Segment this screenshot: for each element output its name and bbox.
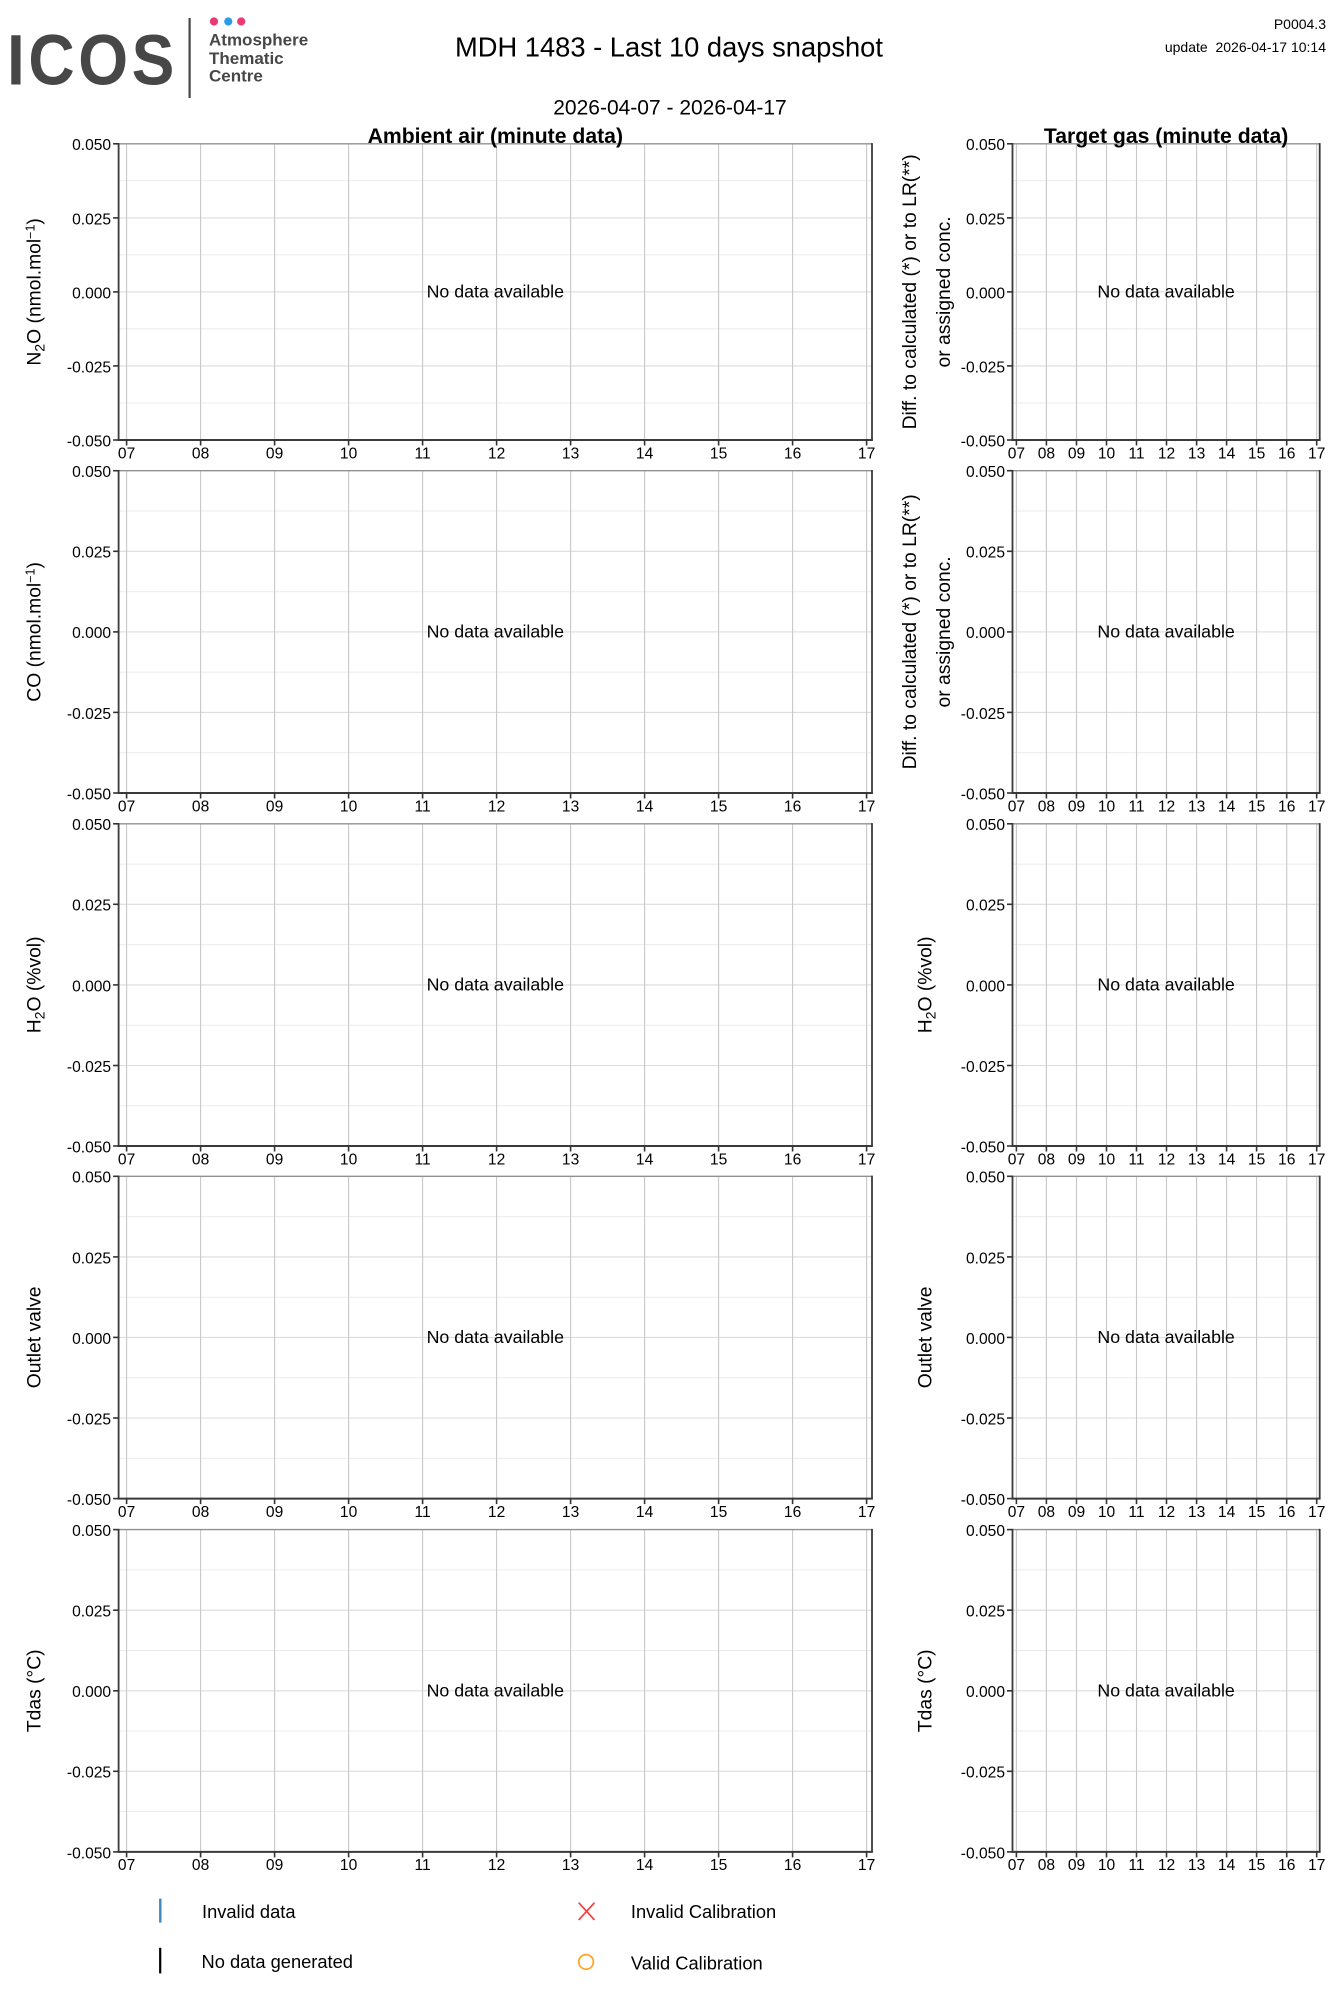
svg-text:07: 07 [118, 445, 135, 462]
svg-text:11: 11 [415, 1504, 431, 1521]
svg-text:13: 13 [562, 1504, 579, 1521]
svg-text:0.000: 0.000 [72, 1331, 111, 1348]
svg-text:0.050: 0.050 [72, 817, 111, 834]
svg-text:17: 17 [858, 798, 875, 815]
svg-text:Diff. to calculated (*) or to: Diff. to calculated (*) or to LR(**) [900, 494, 921, 769]
svg-text:12: 12 [1158, 1504, 1175, 1521]
svg-text:0.050: 0.050 [966, 1523, 1005, 1540]
svg-text:15: 15 [1248, 1504, 1266, 1521]
svg-text:17: 17 [1308, 1504, 1325, 1521]
svg-text:No data available: No data available [427, 282, 565, 302]
svg-text:0.000: 0.000 [966, 1684, 1005, 1701]
svg-text:14: 14 [1218, 1857, 1236, 1874]
svg-text:09: 09 [266, 798, 283, 815]
svg-text:12: 12 [488, 1151, 505, 1168]
svg-text:16: 16 [1278, 1151, 1295, 1168]
svg-text:13: 13 [562, 1151, 579, 1168]
svg-text:16: 16 [784, 1151, 801, 1168]
svg-text:09: 09 [1068, 445, 1085, 462]
svg-text:13: 13 [562, 1857, 579, 1874]
svg-text:-0.025: -0.025 [961, 706, 1006, 723]
svg-text:14: 14 [636, 1151, 654, 1168]
svg-text:10: 10 [340, 1504, 358, 1521]
svg-text:15: 15 [710, 1151, 728, 1168]
svg-text:16: 16 [1278, 445, 1295, 462]
svg-text:07: 07 [1008, 1857, 1025, 1874]
svg-text:Thematic: Thematic [209, 49, 284, 68]
svg-text:Ambient air (minute data): Ambient air (minute data) [368, 125, 623, 148]
svg-text:16: 16 [1278, 1504, 1295, 1521]
svg-text:0.025: 0.025 [966, 898, 1005, 915]
svg-text:11: 11 [415, 445, 431, 462]
svg-text:09: 09 [1068, 798, 1085, 815]
svg-text:0.000: 0.000 [72, 978, 111, 995]
svg-text:17: 17 [858, 445, 875, 462]
svg-text:07: 07 [1008, 798, 1025, 815]
svg-text:08: 08 [192, 1504, 209, 1521]
svg-text:0.025: 0.025 [966, 1250, 1005, 1267]
svg-text:10: 10 [340, 445, 358, 462]
svg-text:CO (nmol.mol−1): CO (nmol.mol−1) [23, 562, 45, 702]
svg-text:Outlet valve: Outlet valve [916, 1286, 937, 1388]
svg-text:13: 13 [562, 798, 579, 815]
svg-text:11: 11 [415, 1857, 431, 1874]
svg-text:or assigned conc.: or assigned conc. [934, 556, 955, 707]
svg-text:09: 09 [266, 1151, 283, 1168]
svg-text:09: 09 [266, 1857, 283, 1874]
svg-text:10: 10 [340, 1151, 358, 1168]
svg-text:-0.050: -0.050 [961, 1139, 1006, 1156]
svg-text:08: 08 [1038, 1504, 1055, 1521]
svg-text:15: 15 [710, 798, 728, 815]
svg-text:10: 10 [340, 798, 358, 815]
svg-text:P0004.3: P0004.3 [1274, 16, 1326, 32]
svg-text:No data available: No data available [1097, 282, 1235, 302]
svg-text:13: 13 [562, 445, 579, 462]
svg-text:-0.050: -0.050 [67, 1845, 112, 1862]
svg-text:0.000: 0.000 [72, 285, 111, 302]
svg-text:15: 15 [1248, 1857, 1266, 1874]
svg-text:15: 15 [1248, 1151, 1266, 1168]
svg-text:08: 08 [1038, 1857, 1055, 1874]
svg-text:10: 10 [1098, 445, 1116, 462]
svg-text:16: 16 [1278, 798, 1295, 815]
svg-text:No data available: No data available [1097, 1327, 1235, 1347]
svg-text:-0.025: -0.025 [961, 1765, 1006, 1782]
svg-text:-0.025: -0.025 [961, 1411, 1006, 1428]
svg-text:14: 14 [636, 1504, 654, 1521]
svg-text:15: 15 [710, 445, 728, 462]
svg-text:No data available: No data available [427, 975, 565, 995]
svg-text:12: 12 [1158, 1151, 1175, 1168]
svg-text:0.050: 0.050 [72, 464, 111, 481]
svg-text:15: 15 [710, 1504, 728, 1521]
svg-text:0.025: 0.025 [72, 1250, 111, 1267]
svg-text:0.025: 0.025 [72, 898, 111, 915]
svg-text:12: 12 [488, 1504, 505, 1521]
svg-text:09: 09 [1068, 1504, 1085, 1521]
svg-text:0.050: 0.050 [966, 137, 1005, 154]
svg-text:-0.050: -0.050 [961, 1492, 1006, 1509]
svg-text:08: 08 [1038, 445, 1055, 462]
svg-text:13: 13 [1188, 445, 1205, 462]
svg-text:0.000: 0.000 [966, 285, 1005, 302]
svg-text:07: 07 [118, 1857, 135, 1874]
svg-text:16: 16 [784, 1857, 801, 1874]
svg-text:ICOS: ICOS [7, 21, 178, 101]
svg-text:17: 17 [858, 1504, 875, 1521]
svg-text:No data available: No data available [427, 1681, 565, 1701]
svg-text:12: 12 [488, 445, 505, 462]
svg-text:0.050: 0.050 [966, 817, 1005, 834]
svg-text:0.050: 0.050 [966, 1170, 1005, 1187]
svg-text:-0.050: -0.050 [961, 786, 1006, 803]
svg-text:09: 09 [266, 1504, 283, 1521]
svg-text:17: 17 [1308, 1151, 1325, 1168]
svg-text:14: 14 [636, 1857, 654, 1874]
svg-text:08: 08 [192, 445, 209, 462]
svg-text:13: 13 [1188, 1504, 1205, 1521]
svg-text:0.025: 0.025 [72, 545, 111, 562]
svg-text:10: 10 [340, 1857, 358, 1874]
svg-text:07: 07 [1008, 1504, 1025, 1521]
svg-text:15: 15 [1248, 445, 1266, 462]
svg-text:-0.050: -0.050 [67, 1492, 112, 1509]
svg-text:0.050: 0.050 [72, 137, 111, 154]
svg-text:MDH 1483 - Last 10 days snapsh: MDH 1483 - Last 10 days snapshot [455, 32, 883, 63]
svg-text:12: 12 [1158, 798, 1175, 815]
svg-text:15: 15 [710, 1857, 728, 1874]
svg-text:17: 17 [858, 1857, 875, 1874]
svg-text:0.025: 0.025 [966, 545, 1005, 562]
svg-text:0.000: 0.000 [966, 1331, 1005, 1348]
svg-text:16: 16 [784, 1504, 801, 1521]
svg-text:-0.025: -0.025 [961, 1059, 1006, 1076]
svg-text:10: 10 [1098, 1857, 1116, 1874]
svg-text:No data available: No data available [1097, 1681, 1235, 1701]
svg-text:14: 14 [1218, 1504, 1236, 1521]
svg-text:08: 08 [192, 1857, 209, 1874]
svg-text:17: 17 [858, 1151, 875, 1168]
svg-text:08: 08 [1038, 798, 1055, 815]
svg-text:No data available: No data available [1097, 975, 1235, 995]
svg-text:11: 11 [1128, 798, 1144, 815]
svg-text:17: 17 [1308, 798, 1325, 815]
svg-text:16: 16 [784, 445, 801, 462]
svg-text:11: 11 [1128, 1504, 1144, 1521]
svg-text:07: 07 [118, 798, 135, 815]
svg-text:09: 09 [1068, 1857, 1085, 1874]
svg-text:-0.050: -0.050 [961, 433, 1006, 450]
svg-text:08: 08 [192, 798, 209, 815]
svg-text:-0.050: -0.050 [67, 433, 112, 450]
svg-text:-0.025: -0.025 [961, 359, 1006, 376]
svg-text:11: 11 [1128, 445, 1144, 462]
svg-text:0.050: 0.050 [72, 1523, 111, 1540]
svg-text:or assigned conc.: or assigned conc. [934, 216, 955, 367]
svg-text:No data generated: No data generated [202, 1951, 353, 1972]
svg-text:0.000: 0.000 [966, 978, 1005, 995]
svg-text:Target gas (minute data): Target gas (minute data) [1044, 125, 1288, 148]
svg-text:0.000: 0.000 [966, 625, 1005, 642]
svg-text:-0.050: -0.050 [961, 1845, 1006, 1862]
svg-text:Valid Calibration: Valid Calibration [631, 1952, 763, 1973]
svg-text:0.025: 0.025 [72, 211, 111, 228]
svg-text:11: 11 [415, 1151, 431, 1168]
svg-text:0.025: 0.025 [966, 211, 1005, 228]
svg-text:14: 14 [1218, 798, 1236, 815]
svg-text:14: 14 [636, 445, 654, 462]
svg-text:10: 10 [1098, 798, 1116, 815]
svg-text:-0.025: -0.025 [67, 359, 112, 376]
svg-text:11: 11 [415, 798, 431, 815]
svg-text:0.025: 0.025 [966, 1604, 1005, 1621]
svg-text:Tdas (°C): Tdas (°C) [916, 1649, 937, 1732]
svg-text:07: 07 [1008, 1151, 1025, 1168]
svg-text:-0.025: -0.025 [67, 1059, 112, 1076]
svg-text:Outlet valve: Outlet valve [25, 1286, 46, 1388]
svg-text:No data available: No data available [1097, 622, 1235, 642]
svg-text:14: 14 [1218, 445, 1236, 462]
svg-text:Centre: Centre [209, 67, 263, 86]
svg-text:09: 09 [266, 445, 283, 462]
svg-text:0.025: 0.025 [72, 1604, 111, 1621]
svg-text:0.050: 0.050 [72, 1170, 111, 1187]
svg-text:Tdas (°C): Tdas (°C) [25, 1649, 46, 1732]
svg-text:16: 16 [784, 798, 801, 815]
svg-text:-0.025: -0.025 [67, 1765, 112, 1782]
svg-text:07: 07 [118, 1151, 135, 1168]
svg-text:17: 17 [1308, 1857, 1325, 1874]
svg-text:10: 10 [1098, 1151, 1116, 1168]
svg-text:08: 08 [1038, 1151, 1055, 1168]
svg-text:17: 17 [1308, 445, 1325, 462]
svg-text:0.000: 0.000 [72, 625, 111, 642]
svg-text:Atmosphere: Atmosphere [209, 31, 308, 50]
svg-text:13: 13 [1188, 798, 1205, 815]
svg-text:13: 13 [1188, 1857, 1205, 1874]
svg-text:-0.050: -0.050 [67, 1139, 112, 1156]
svg-text:-0.025: -0.025 [67, 706, 112, 723]
svg-text:07: 07 [1008, 445, 1025, 462]
svg-text:No data available: No data available [427, 622, 565, 642]
svg-text:-0.050: -0.050 [67, 786, 112, 803]
svg-text:09: 09 [1068, 1151, 1085, 1168]
svg-text:0.000: 0.000 [72, 1684, 111, 1701]
svg-text:No data available: No data available [427, 1327, 565, 1347]
svg-text:12: 12 [1158, 445, 1175, 462]
svg-text:13: 13 [1188, 1151, 1205, 1168]
svg-text:14: 14 [1218, 1151, 1236, 1168]
svg-text:12: 12 [488, 1857, 505, 1874]
svg-text:Invalid Calibration: Invalid Calibration [631, 1901, 776, 1922]
svg-text:11: 11 [1128, 1151, 1144, 1168]
svg-text:12: 12 [1158, 1857, 1175, 1874]
svg-text:15: 15 [1248, 798, 1266, 815]
svg-text:Diff. to calculated (*) or to: Diff. to calculated (*) or to LR(**) [900, 154, 921, 429]
svg-text:N2O (nmol.mol−1): N2O (nmol.mol−1) [23, 218, 48, 366]
svg-text:08: 08 [192, 1151, 209, 1168]
svg-text:16: 16 [1278, 1857, 1295, 1874]
svg-text:07: 07 [118, 1504, 135, 1521]
svg-text:update 2026-04-17 10:14: update 2026-04-17 10:14 [1165, 39, 1326, 55]
svg-text:11: 11 [1128, 1857, 1144, 1874]
svg-text:2026-04-07 - 2026-04-17: 2026-04-07 - 2026-04-17 [553, 96, 787, 119]
svg-text:Invalid data: Invalid data [202, 1901, 296, 1922]
svg-text:14: 14 [636, 798, 654, 815]
svg-text:-0.025: -0.025 [67, 1411, 112, 1428]
svg-text:10: 10 [1098, 1504, 1116, 1521]
svg-text:12: 12 [488, 798, 505, 815]
svg-text:0.050: 0.050 [966, 464, 1005, 481]
